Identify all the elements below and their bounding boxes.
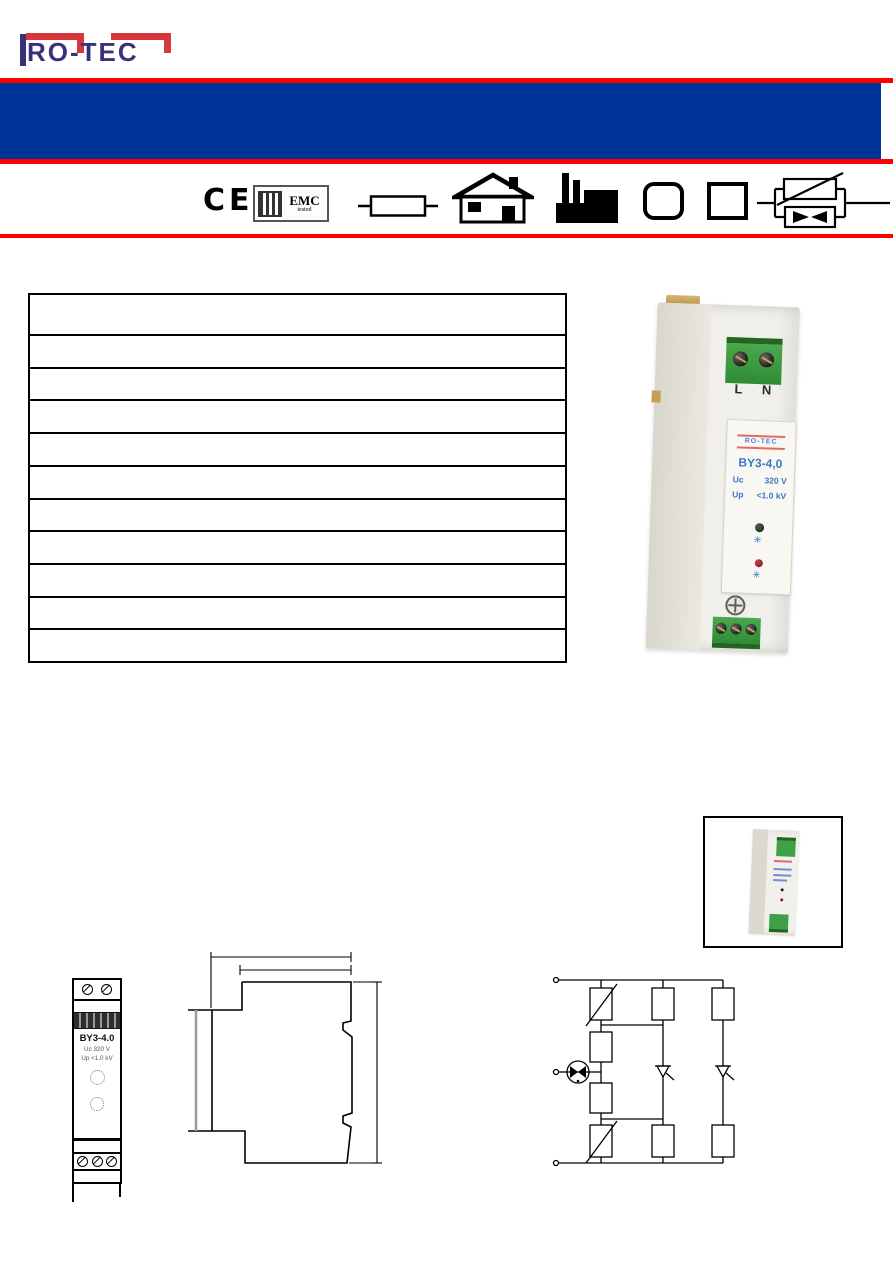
small-product-photo-frame [703, 816, 843, 948]
up-label: Up [732, 489, 744, 499]
drawing-gap [74, 1001, 120, 1012]
drawing-label-area: BY3-4.0 Uc 320 V Up <1.0 kV [74, 1033, 120, 1141]
table-row [30, 465, 565, 498]
table-row [30, 596, 565, 629]
small-product-photo [749, 829, 799, 935]
table-row [30, 367, 565, 400]
status-led-red [755, 559, 763, 567]
emc-tested-badge: EMC tested [253, 185, 329, 222]
table-row [30, 295, 565, 334]
terminal-screw [759, 352, 775, 368]
terminal-l-label: L [734, 381, 742, 396]
ce-mark-icon: CE [203, 183, 254, 218]
ets-logo-icon [258, 191, 282, 217]
logo-text: RO-TEC [27, 37, 139, 68]
product-photo: L N RO-TEC BY3-4,0 Uc 320 V Up <1.0 kV [648, 294, 812, 660]
emc-label: EMC [282, 194, 327, 207]
drawing-logo-band [74, 1012, 120, 1029]
snowflake-symbol-icon: ✳ [722, 570, 790, 582]
mini-led-dark [781, 888, 784, 891]
emc-badge-text: EMC tested [282, 194, 327, 213]
fuse-icon [358, 193, 438, 219]
terminal-screw [730, 623, 741, 634]
up-value: <1.0 kV [757, 490, 787, 501]
model-label: BY3-4,0 [726, 455, 794, 471]
mini-led-red [780, 898, 783, 901]
drawing-indicator-circle [90, 1097, 104, 1111]
spec-table [28, 293, 567, 663]
uc-label: Uc [733, 474, 744, 484]
table-row [30, 498, 565, 531]
square-icon [707, 182, 748, 220]
screw-icon [106, 1156, 117, 1167]
datasheet-page: RO-TEC CE EMC tested [0, 0, 893, 1263]
drawing-top-screws [74, 980, 120, 1001]
table-row [30, 530, 565, 563]
table-row [30, 399, 565, 432]
terminal-screw [745, 624, 756, 635]
drawing-foot-line [72, 1184, 74, 1202]
bottom-terminal [712, 617, 761, 650]
screw-icon [82, 984, 93, 995]
logo-stem [20, 34, 26, 66]
terminal-screw [715, 623, 726, 634]
snowflake-symbol-icon: ✳ [723, 535, 791, 547]
red-separator-rule [0, 234, 893, 238]
top-terminal [725, 337, 783, 385]
status-led-dark [755, 523, 764, 532]
logo-red-line [737, 446, 785, 450]
terminal-screw [733, 351, 749, 367]
terminal-labels: L N [725, 381, 781, 398]
uc-row: Uc 320 V [726, 474, 794, 486]
screw-icon [92, 1156, 103, 1167]
drawing-foot-line [119, 1184, 121, 1197]
drawing-gap [74, 1141, 120, 1154]
mini-top-terminal [776, 837, 796, 857]
surge-protector-module: L N RO-TEC BY3-4,0 Uc 320 V Up <1.0 kV [646, 299, 800, 656]
logo-red-drop [164, 33, 171, 53]
up-row: Up <1.0 kV [725, 489, 793, 501]
banner-bottom-rule [0, 159, 893, 164]
table-row [30, 563, 565, 596]
drawing-model-label: BY3-4.0 [74, 1033, 120, 1044]
front-view-drawing: BY3-4.0 Uc 320 V Up <1.0 kV [72, 978, 122, 1184]
rounded-square-icon [643, 182, 684, 220]
table-row [30, 432, 565, 465]
table-row [30, 334, 565, 367]
varistor-gdt-icon [757, 172, 890, 230]
circuit-diagram [538, 953, 890, 1175]
terminal-n-label: N [762, 382, 772, 397]
drawing-bottom-screws [74, 1154, 120, 1171]
house-icon [452, 172, 534, 224]
drawing-uc-label: Uc 320 V [74, 1046, 120, 1053]
factory-icon [556, 173, 618, 223]
screw-icon [77, 1156, 88, 1167]
table-row [30, 628, 565, 661]
front-label-panel: RO-TEC BY3-4,0 Uc 320 V Up <1.0 kV ✳ ✳ [721, 419, 797, 595]
screw-icon [101, 984, 112, 995]
protec-logo: RO-TEC [12, 24, 190, 72]
title-banner [0, 83, 881, 159]
side-profile-drawing [183, 946, 385, 1170]
drawing-up-label: Up <1.0 kV [74, 1055, 120, 1062]
mini-bottom-terminal [769, 914, 789, 933]
din-rail-tab [651, 390, 660, 402]
panel-brand-logo: RO-TEC [727, 434, 795, 450]
drawing-indicator-circle [90, 1070, 105, 1085]
uc-value: 320 V [764, 475, 787, 486]
